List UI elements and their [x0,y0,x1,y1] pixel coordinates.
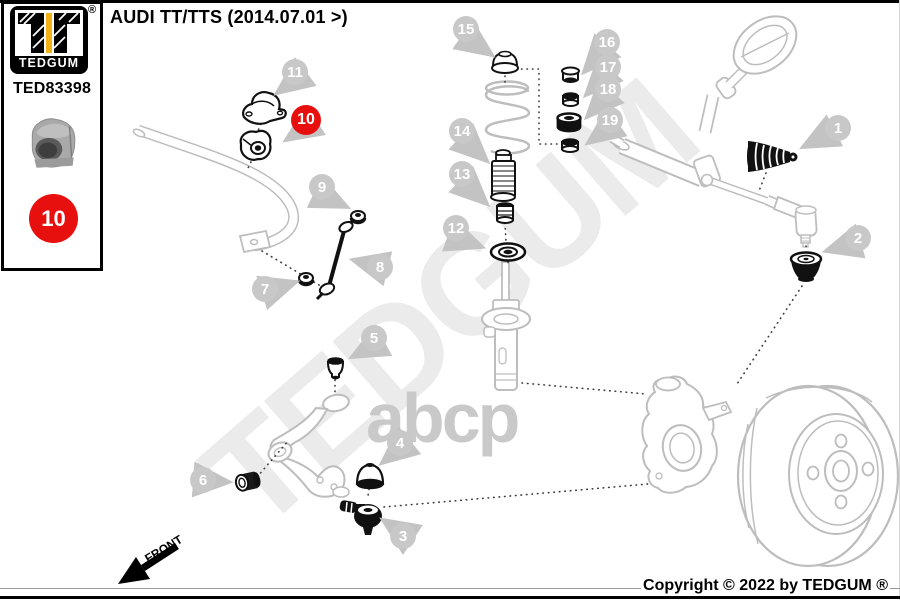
callout-19: 19 [597,107,623,133]
bushing-part-16 [562,68,579,83]
callout-2: 2 [845,225,871,251]
strut-shock-absorber [482,256,530,390]
mount-washer-part-12 [491,244,525,261]
cone-boot-part-2 [791,253,821,283]
ball-joint-part-3 [339,500,382,535]
arm-bushing-part-5 [328,358,343,379]
callout-4: 4 [387,430,413,456]
bump-stop-part-13 [497,203,513,223]
copyright-notice: Copyright © 2022 by TEDGUM ® [641,577,890,595]
tedgum-logo: TEDGUM [10,6,88,74]
arm-bushing-part-6 [234,471,261,493]
part-photo-bushing [24,112,82,174]
tedgum-logo-wordmark: TEDGUM [10,56,88,70]
tie-rod-end [767,197,817,247]
callout-15: 15 [453,16,479,42]
spring-cap-part-15 [492,52,518,74]
callout-9: 9 [309,174,335,200]
registered-trademark-symbol: ® [88,4,96,16]
front-direction-arrow: FRONT [118,532,186,584]
steering-column-assembly [612,5,808,201]
nut-part-9 [351,211,365,223]
callout-14: 14 [449,118,475,144]
front-label: FRONT [142,532,185,566]
stabilizer-link-part-8 [317,219,355,299]
nut-part-7 [299,273,313,285]
bushing-part-19 [562,139,578,152]
bushing-part-17 [563,93,578,106]
balljoint-boot-part-4 [357,463,383,489]
callout-13: 13 [449,161,475,187]
callout-12: 12 [443,215,469,241]
callout-5: 5 [361,325,387,351]
callout-8: 8 [367,254,393,280]
stabilizer-clamp-part-11 [243,92,286,124]
part-info-panel: TEDGUM ® TED83398 10 [1,1,103,271]
part-number: TED83398 [4,80,100,98]
callout-11: 11 [282,59,308,85]
steering-knuckle [642,377,731,493]
stabilizer-bushing-part-10 [241,131,271,160]
strut-boot-part-14 [491,150,515,201]
exploded-diagram: FRONT [0,0,900,600]
rack-boot-part-1 [747,141,798,172]
coil-spring [486,82,529,154]
tedgum-tt-mark-icon [15,10,83,56]
callout-10-highlighted: 10 [291,105,321,135]
control-arm [265,393,350,497]
callout-18: 18 [595,76,621,102]
page: TEDGUM abcp [0,0,900,600]
wheel-tire [738,386,898,566]
callout-7: 7 [252,276,278,302]
washer-part-18 [558,114,581,132]
callout-6: 6 [190,467,216,493]
highlighted-part-ref-badge: 10 [29,194,78,243]
callout-16: 16 [594,29,620,55]
callout-1: 1 [825,115,851,141]
callout-3: 3 [390,523,416,549]
